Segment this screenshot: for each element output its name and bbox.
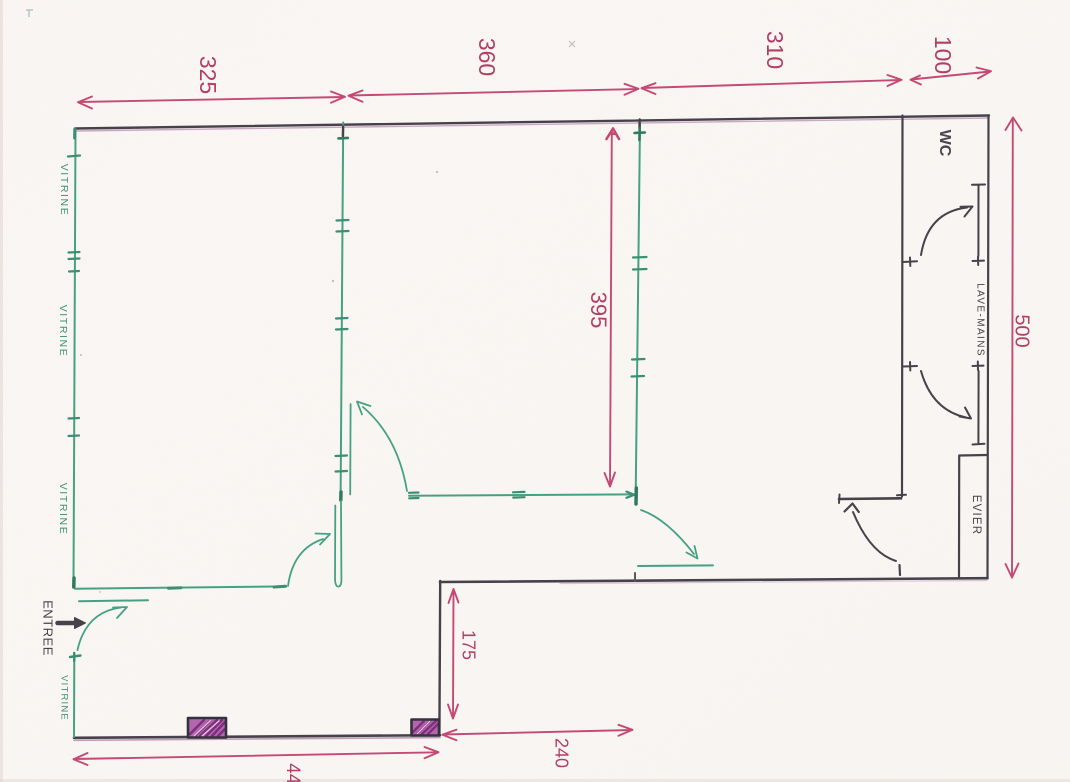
svg-text:VITRINE: VITRINE (57, 483, 69, 536)
svg-text:395: 395 (586, 292, 611, 329)
svg-text:310: 310 (762, 31, 788, 69)
svg-text:LAVE-MAINS: LAVE-MAINS (974, 283, 985, 357)
svg-text:360: 360 (474, 38, 500, 76)
svg-text:ENTREE: ENTREE (41, 600, 56, 656)
svg-text:240: 240 (551, 738, 571, 768)
svg-text:EVIER: EVIER (970, 495, 982, 536)
svg-text:WC: WC (936, 130, 953, 157)
svg-text:VITRINE: VITRINE (58, 164, 70, 217)
svg-text:325: 325 (195, 56, 221, 94)
svg-text:500: 500 (1011, 314, 1033, 347)
svg-text:VITRINE: VITRINE (58, 675, 69, 721)
svg-text:VITRINE: VITRINE (57, 305, 69, 358)
svg-text:100: 100 (930, 36, 956, 74)
svg-text:175: 175 (458, 630, 478, 660)
svg-text:440: 440 (282, 763, 303, 782)
